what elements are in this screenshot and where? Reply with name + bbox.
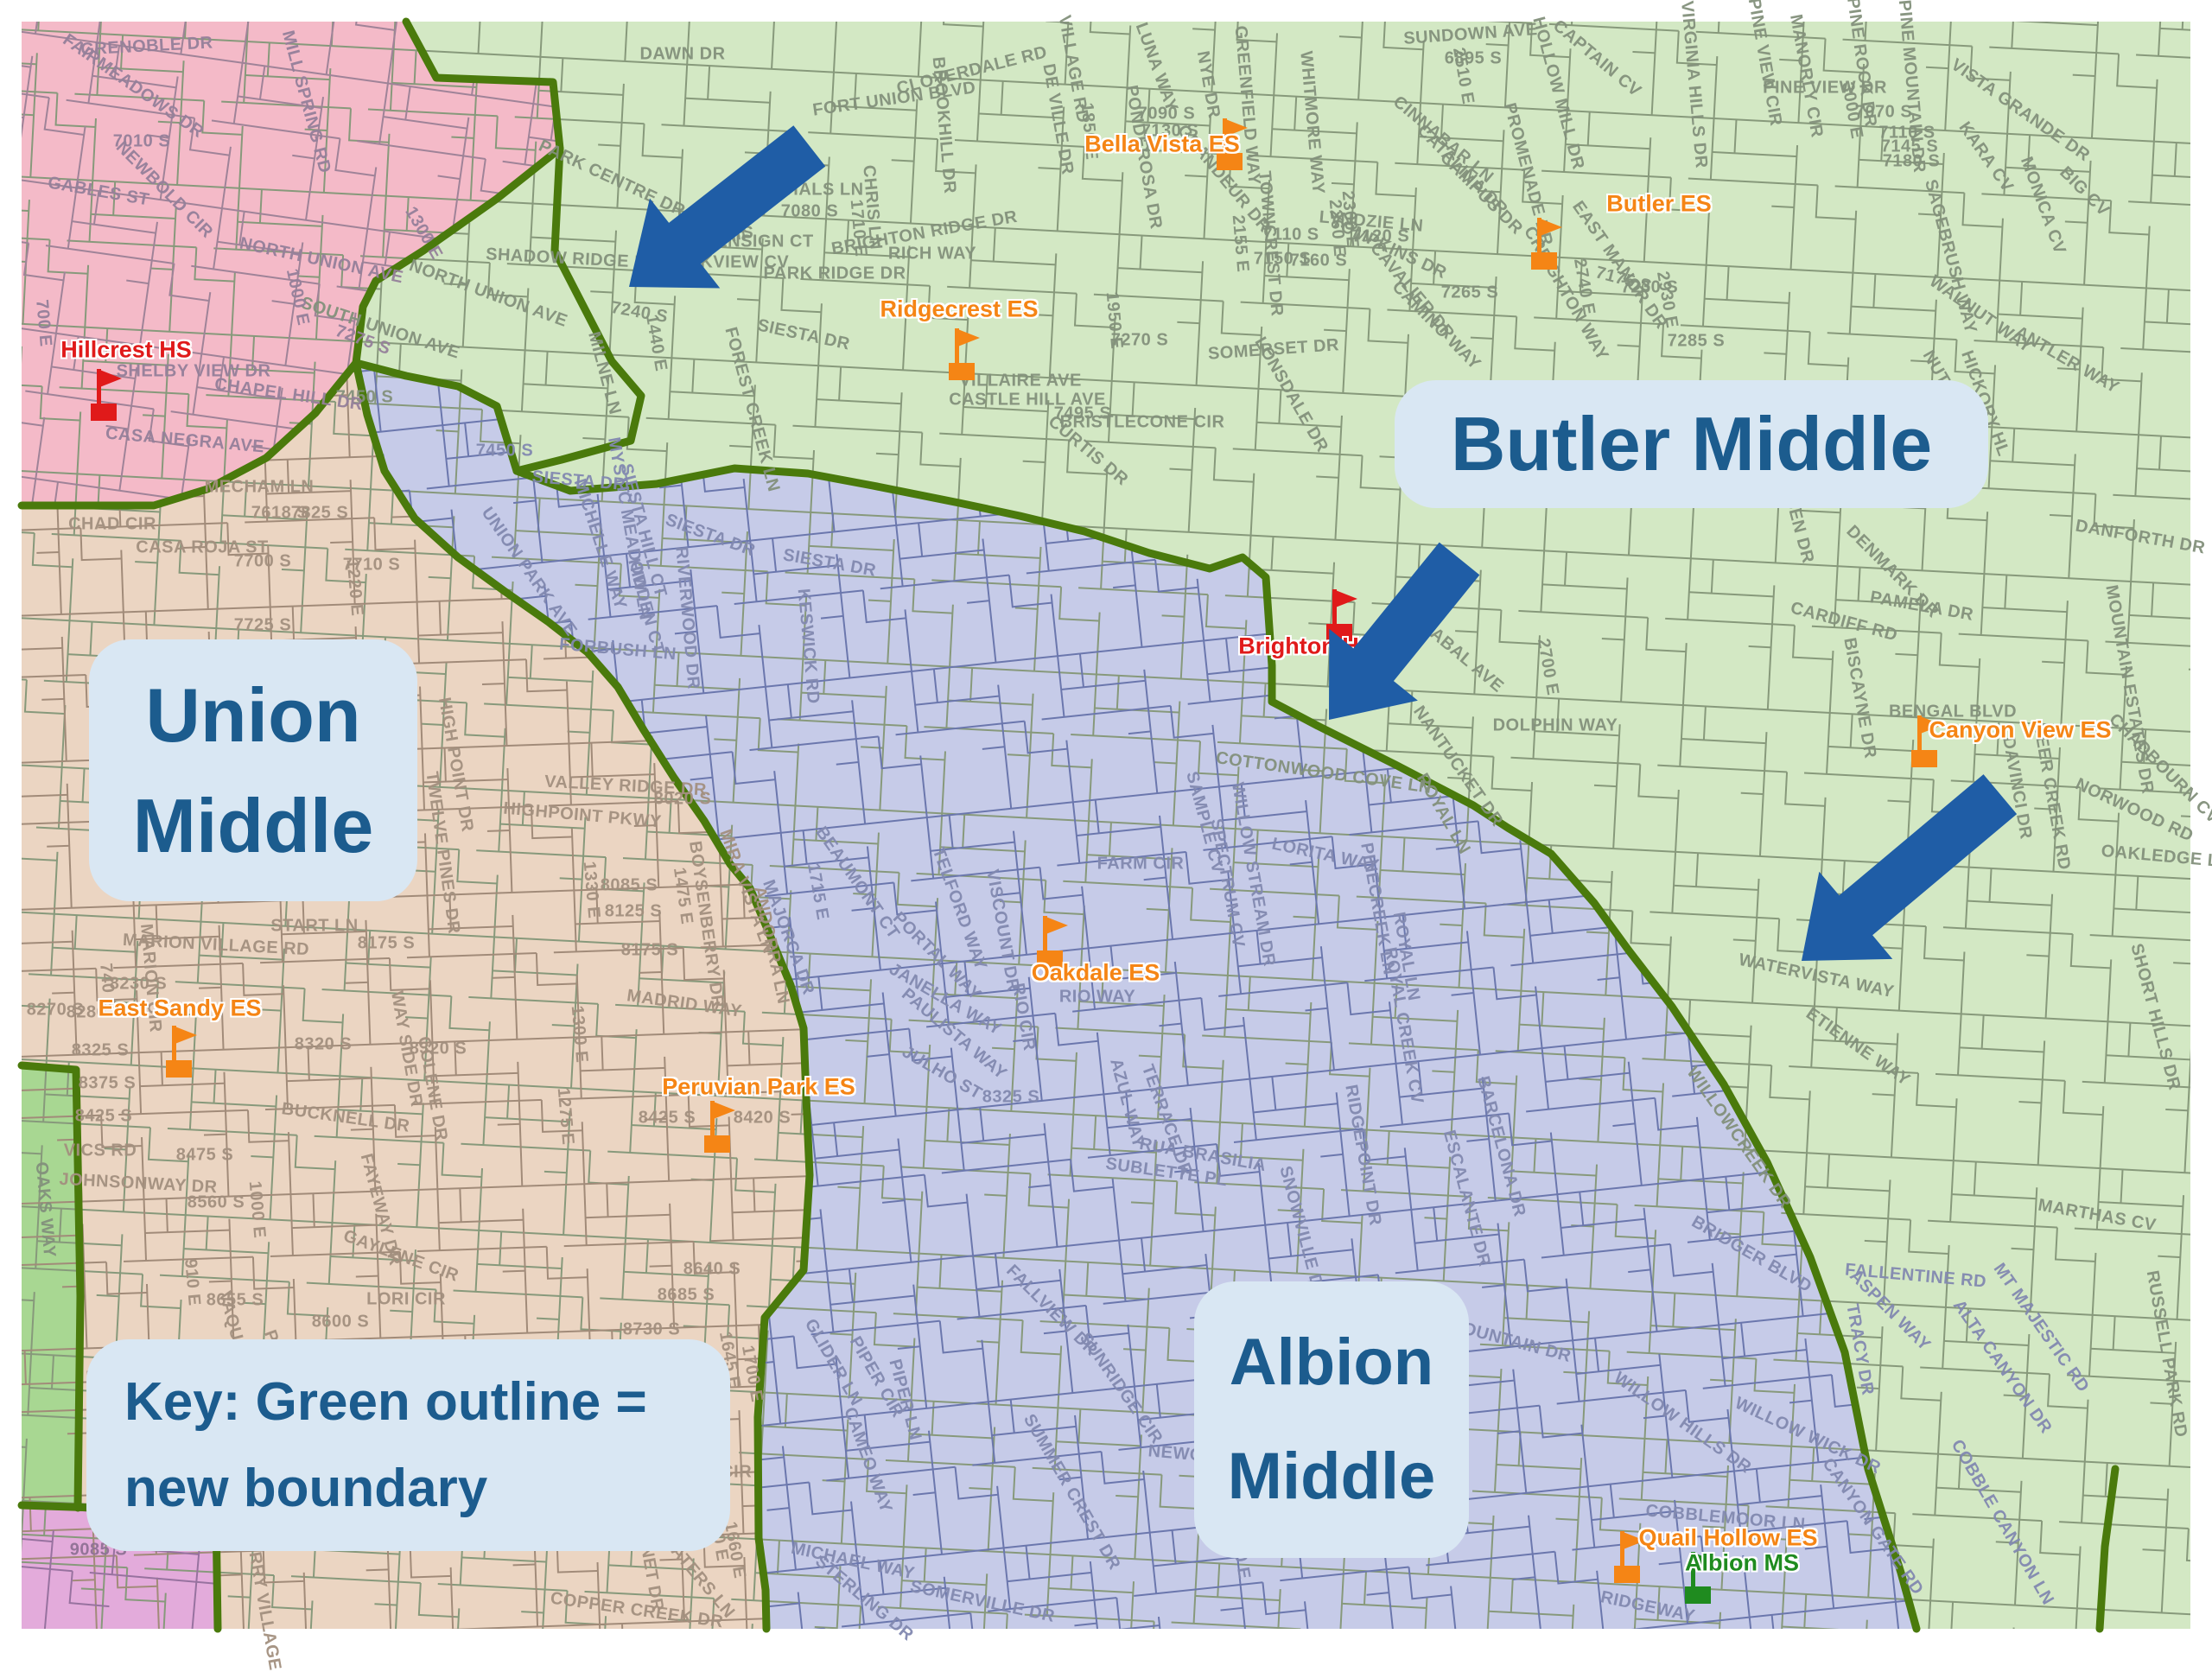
boundary-arrows-svg [0, 0, 2212, 1659]
school-boundary-map: DAWN DRFORT UNION BLVDCLOVERDALE RDGREEN… [0, 0, 2212, 1659]
boundary-arrow [1765, 751, 2037, 1005]
boundary-arrow [594, 101, 844, 332]
boundary-arrow [1285, 523, 1504, 756]
boundary-arrows [594, 101, 2037, 1005]
